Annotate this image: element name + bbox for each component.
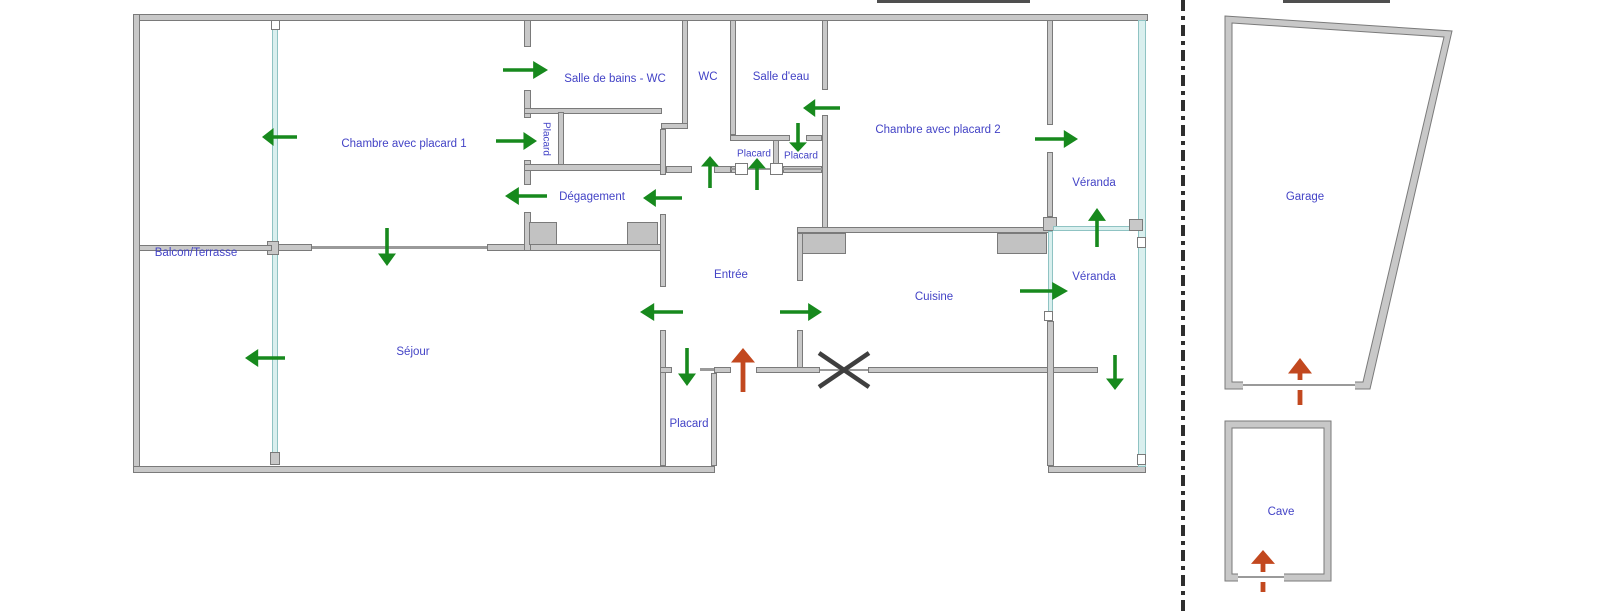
door-arrow-icon [1035,130,1078,148]
wall-segment [660,214,666,287]
wall-salle-eau-right [822,115,828,228]
wall-segment [756,367,820,373]
wall-segment [714,166,731,173]
wall-t-cap [1129,219,1143,231]
room-label-cuisine: Cuisine [915,291,953,303]
door-arrow-icon [780,303,822,321]
door-arrow-icon [496,132,537,150]
wall-segment [730,135,790,141]
room-label-placard-couloir-2: Placard [784,151,818,162]
glass-veranda-divider [1053,226,1133,231]
wall-segment [660,367,672,373]
wall-segment [806,135,822,141]
room-label-degagement: Dégagement [559,191,625,203]
room-label-entree: Entrée [714,269,748,281]
room-label-placard-entree: Placard [670,418,709,430]
room-label-salle-de-bains: Salle de bains - WC [564,73,666,85]
window-sill [312,246,487,249]
window-junction [1137,454,1146,465]
wall-segment [524,20,531,47]
door-threshold-marker [735,163,748,175]
window-junction [1137,237,1146,248]
glass-wall-veranda [1048,231,1053,315]
crop-artifact [877,0,1030,3]
wall-cuisine-west [797,330,803,372]
wall-segment [666,166,692,173]
window-junction [271,20,280,30]
wall-segment [278,244,312,251]
wall-placard1-right [558,112,564,168]
room-label-chambre1: Chambre avec placard 1 [341,138,466,150]
room-label-cave: Cave [1268,506,1295,518]
door-arrow-icon [245,349,285,367]
room-label-chambre2: Chambre avec placard 2 [875,124,1000,136]
storage-block [802,233,846,254]
storage-block [997,233,1047,254]
entrance-arrow-icon [731,348,755,392]
wall-veranda-bottom [1048,466,1146,473]
room-label-salle-eau: Salle d'eau [753,71,810,83]
wall-segment [487,244,666,251]
storage-block [529,222,557,245]
window-junction [1044,311,1053,321]
door-arrow-icon [643,189,682,207]
room-label-garage: Garage [1286,191,1324,203]
wall-segment [660,330,666,466]
room-label-veranda-haut: Véranda [1072,177,1115,189]
wall-stub [270,452,280,465]
wall-veranda-left [1047,321,1054,466]
door-arrow-icon [1020,282,1068,300]
door-threshold-marker [770,163,783,175]
door-arrow-icon [678,348,696,386]
wall-outer-bottom [133,466,715,473]
room-label-placard-couloir-1: Placard [737,149,771,160]
wall-sdb-bottom [524,108,662,114]
wall-degagement-top [524,164,666,171]
room-label-veranda-bas: Véranda [1072,271,1115,283]
door-arrow-icon [748,158,766,190]
wall-veranda-left [1047,152,1053,217]
wall-veranda-left [1047,20,1053,125]
wall-salle-eau-right [822,20,828,90]
wall-outer-left [133,14,140,473]
wall-placard-entree-right [711,373,717,466]
x-mark-icon [816,351,872,389]
door-arrow-icon [503,61,548,79]
storage-block [627,222,658,245]
garage-cave-outline [1180,0,1480,615]
wall-segment [868,367,1053,373]
door-arrow-icon [505,187,547,205]
floor-plan: Balcon/Terrasse Chambre avec placard 1 S… [0,0,1600,615]
room-label-placard-chambre1: Placard [541,122,552,156]
door-arrow-icon [1106,355,1124,390]
wall-outer-top [133,14,1148,21]
wall-wc-left [682,20,688,128]
door-arrow-icon [789,123,807,152]
door-arrow-icon [640,303,683,321]
wall-stub [1053,367,1098,373]
room-label-balcon: Balcon/Terrasse [155,247,237,259]
room-label-sejour: Séjour [396,346,429,358]
door-arrow-icon [262,128,297,146]
room-label-wc: WC [698,71,717,83]
wall-wc-right [730,20,736,135]
